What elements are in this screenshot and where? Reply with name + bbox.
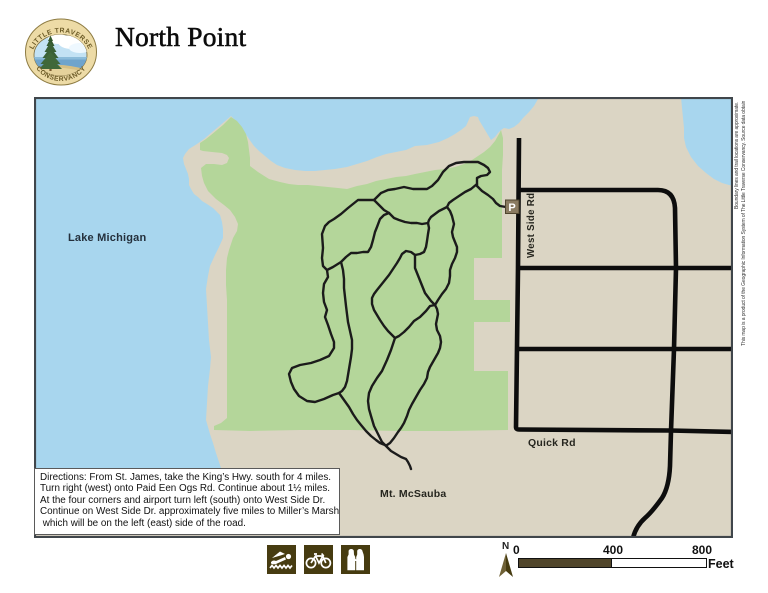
svg-text:West Side Rd: West Side Rd (526, 193, 537, 258)
svg-text:Mt. McSauba: Mt. McSauba (380, 488, 446, 500)
svg-text:Quick Rd: Quick Rd (528, 437, 576, 449)
svg-text:P: P (508, 202, 515, 214)
svg-text:Lake Michigan: Lake Michigan (68, 232, 146, 244)
